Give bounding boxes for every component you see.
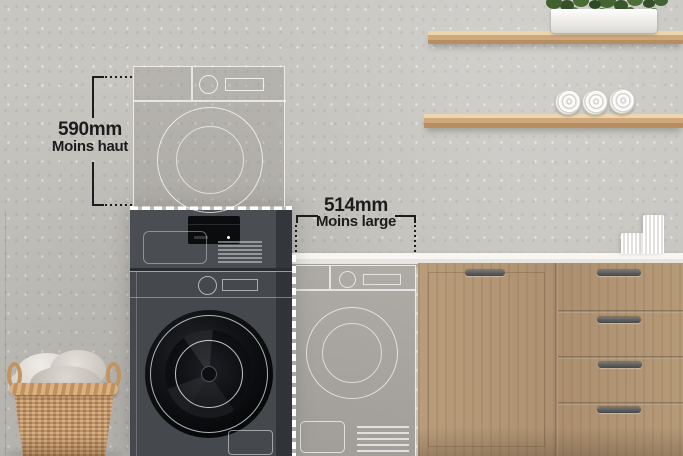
width-extension-dotted-line <box>414 225 416 254</box>
washer-panel-line <box>130 297 292 298</box>
ghost-vent-line <box>357 438 409 440</box>
ghost-knob-outline <box>339 271 356 288</box>
height-bracket-tick <box>92 204 104 206</box>
cabinet-door <box>418 263 555 456</box>
white-cup-tall <box>643 215 664 254</box>
height-bracket-line <box>92 76 94 118</box>
dryer-vent-line <box>218 241 262 243</box>
ghost-vent-line <box>357 432 409 434</box>
washer-service-hatch <box>228 430 273 455</box>
height-extension-dotted-line <box>105 204 134 206</box>
wall-shelf-bottom <box>424 114 683 128</box>
width-bracket-tick <box>296 215 298 223</box>
dryer-vent-line <box>218 257 262 259</box>
laundry-room-scene: 590mm Moins haut 514mm Moins large <box>0 0 683 456</box>
height-bracket-line <box>92 162 94 206</box>
width-saving-dashed-edge <box>292 255 296 456</box>
ghost-washer-outline <box>296 265 416 456</box>
width-bracket-tick <box>414 215 416 223</box>
ghost-door-inner-circle <box>322 323 382 383</box>
dryer-vent-line <box>218 261 262 263</box>
ghost-display-outline <box>363 274 401 285</box>
cabinet-divider <box>555 263 558 456</box>
ghost-dryer-outline <box>133 66 285 207</box>
dryer-vent-line <box>218 253 262 255</box>
washer-display-outline <box>222 279 258 291</box>
drawer-seam <box>558 356 683 359</box>
wood-cabinet <box>418 263 683 456</box>
rolled-towel <box>609 88 635 114</box>
ghost-vent-line <box>357 426 409 428</box>
dryer-door-outline <box>143 231 207 264</box>
laundry-basket <box>8 350 120 456</box>
rolled-towel <box>582 89 608 115</box>
drawer-handle <box>598 362 642 368</box>
cabinet-door-handle <box>465 270 505 276</box>
height-saving-value: 590mm <box>40 120 140 139</box>
ghost-vent-line <box>357 450 409 452</box>
dryer-vent-line <box>218 249 262 251</box>
drawer-seam <box>558 402 683 405</box>
ghost-panel-line <box>296 289 416 291</box>
white-cup-short <box>621 233 645 254</box>
ghost-panel-divider <box>191 67 193 100</box>
ghost-display-outline <box>225 78 264 91</box>
ghost-panel-divider <box>329 266 331 289</box>
height-bracket-tick <box>92 76 104 78</box>
ghost-door-inner-circle <box>176 126 244 194</box>
drawer-handle <box>597 317 641 323</box>
dryer-unit <box>130 210 292 268</box>
rolled-towel <box>555 89 581 115</box>
washer-drum-hub <box>201 366 217 382</box>
ghost-service-hatch <box>300 421 345 453</box>
height-saving-caption: Moins haut <box>38 139 142 154</box>
ghost-vent-line <box>357 444 409 446</box>
white-planter <box>551 9 657 33</box>
basket-rim <box>10 383 118 395</box>
drawer-handle <box>597 407 641 413</box>
ghost-panel-line <box>134 100 286 102</box>
ghost-knob-outline <box>199 75 218 94</box>
basket-body <box>14 388 114 456</box>
dryer-vent-line <box>218 245 262 247</box>
width-extension-dotted-line <box>295 225 297 254</box>
width-saving-caption: Moins large <box>306 214 406 229</box>
height-extension-dotted-line <box>105 76 134 78</box>
washer-door <box>145 310 273 438</box>
washer-knob-outline <box>198 276 217 295</box>
wall-corner-line <box>5 210 6 456</box>
stacked-washer-dryer <box>130 206 292 456</box>
drawer-handle <box>597 270 641 276</box>
drawer-seam <box>558 310 683 313</box>
washer-unit <box>130 271 292 456</box>
